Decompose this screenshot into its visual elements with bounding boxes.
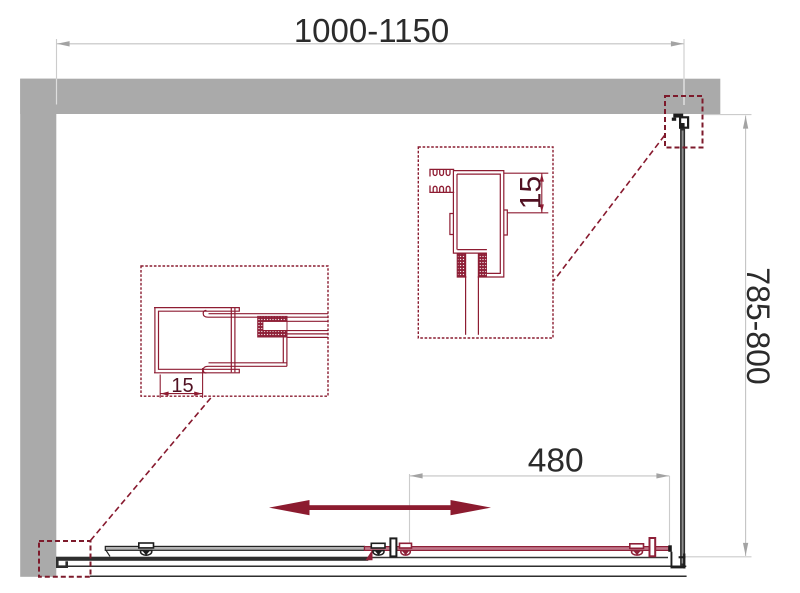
- svg-text:785-800: 785-800: [740, 267, 776, 384]
- svg-text:480: 480: [528, 443, 584, 480]
- svg-text:1000-1150: 1000-1150: [294, 12, 449, 49]
- svg-text:15: 15: [171, 375, 193, 397]
- svg-text:15: 15: [514, 176, 547, 209]
